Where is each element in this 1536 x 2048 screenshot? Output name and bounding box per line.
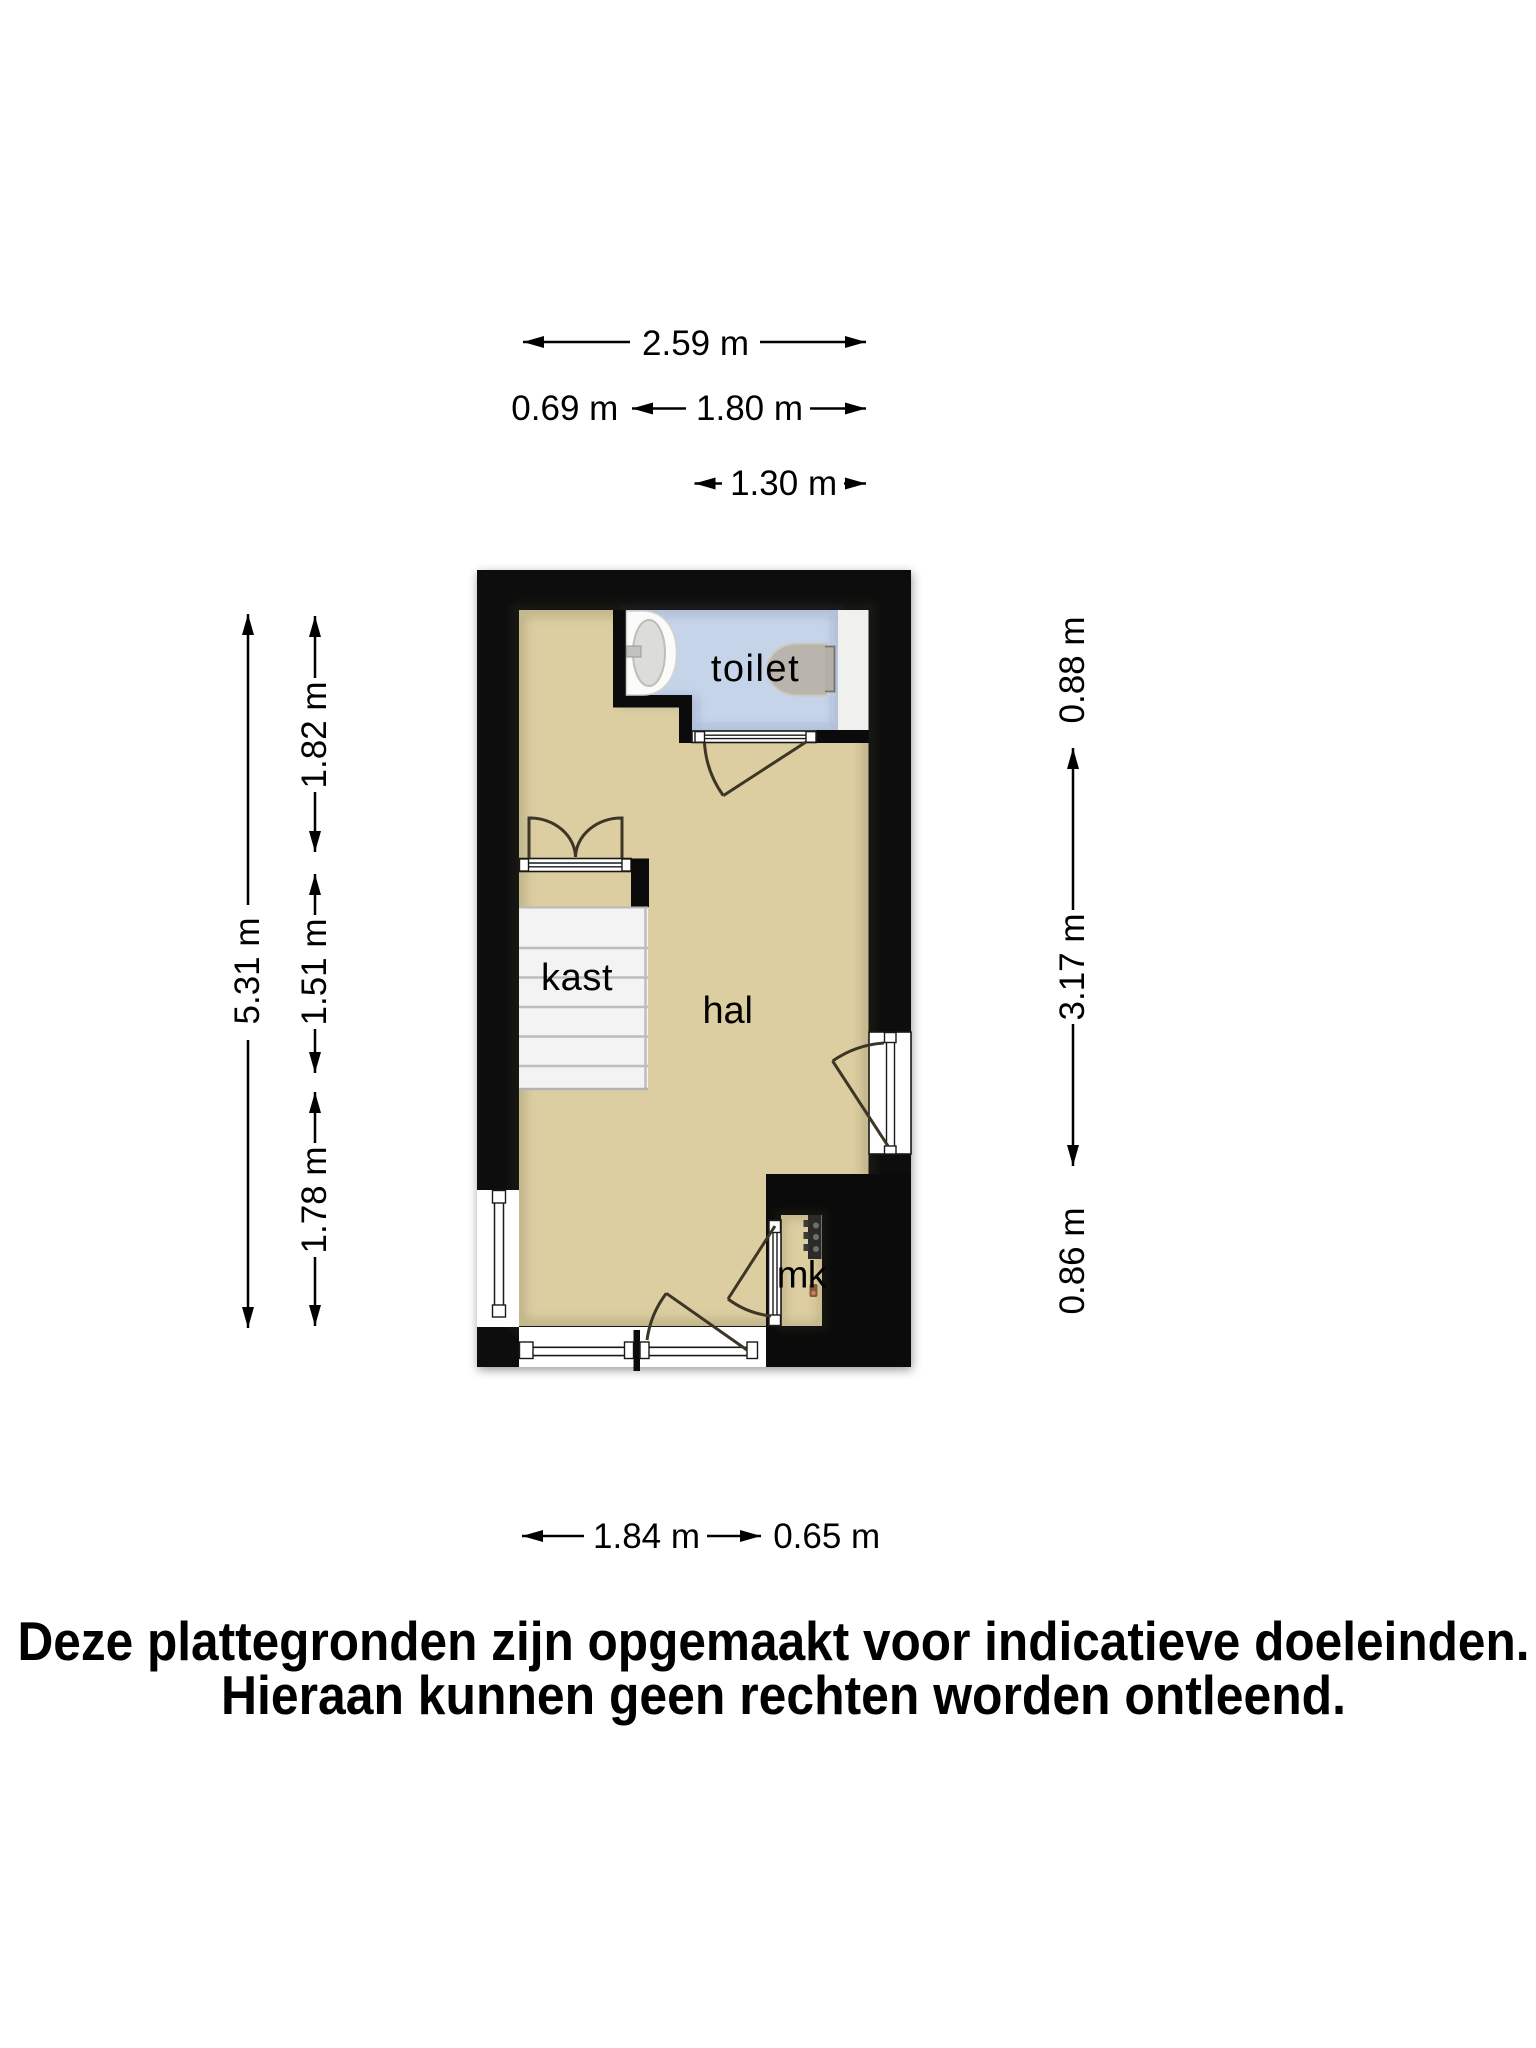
svg-text:Hieraan kunnen geen rechten wo: Hieraan kunnen geen rechten worden ontle… xyxy=(221,1664,1346,1726)
svg-text:kast: kast xyxy=(541,957,614,999)
svg-text:1.82 m: 1.82 m xyxy=(295,682,334,789)
svg-text:0.86 m: 0.86 m xyxy=(1053,1208,1092,1315)
svg-text:mk: mk xyxy=(777,1255,829,1297)
svg-text:1.84 m: 1.84 m xyxy=(593,1517,700,1556)
svg-text:hal: hal xyxy=(703,990,755,1032)
svg-text:Deze plattegronden zijn opgema: Deze plattegronden zijn opgemaakt voor i… xyxy=(18,1610,1530,1672)
svg-text:1.78 m: 1.78 m xyxy=(295,1147,334,1254)
svg-text:0.88 m: 0.88 m xyxy=(1053,617,1092,724)
svg-text:5.31 m: 5.31 m xyxy=(228,918,267,1025)
svg-text:3.17 m: 3.17 m xyxy=(1053,914,1092,1021)
svg-text:0.69 m: 0.69 m xyxy=(511,389,618,428)
svg-text:1.80 m: 1.80 m xyxy=(696,389,803,428)
svg-text:2.59 m: 2.59 m xyxy=(642,324,749,363)
svg-text:1.51 m: 1.51 m xyxy=(295,919,334,1026)
svg-text:0.65 m: 0.65 m xyxy=(773,1517,880,1556)
svg-text:1.30 m: 1.30 m xyxy=(730,464,837,503)
svg-text:toilet: toilet xyxy=(711,648,800,690)
